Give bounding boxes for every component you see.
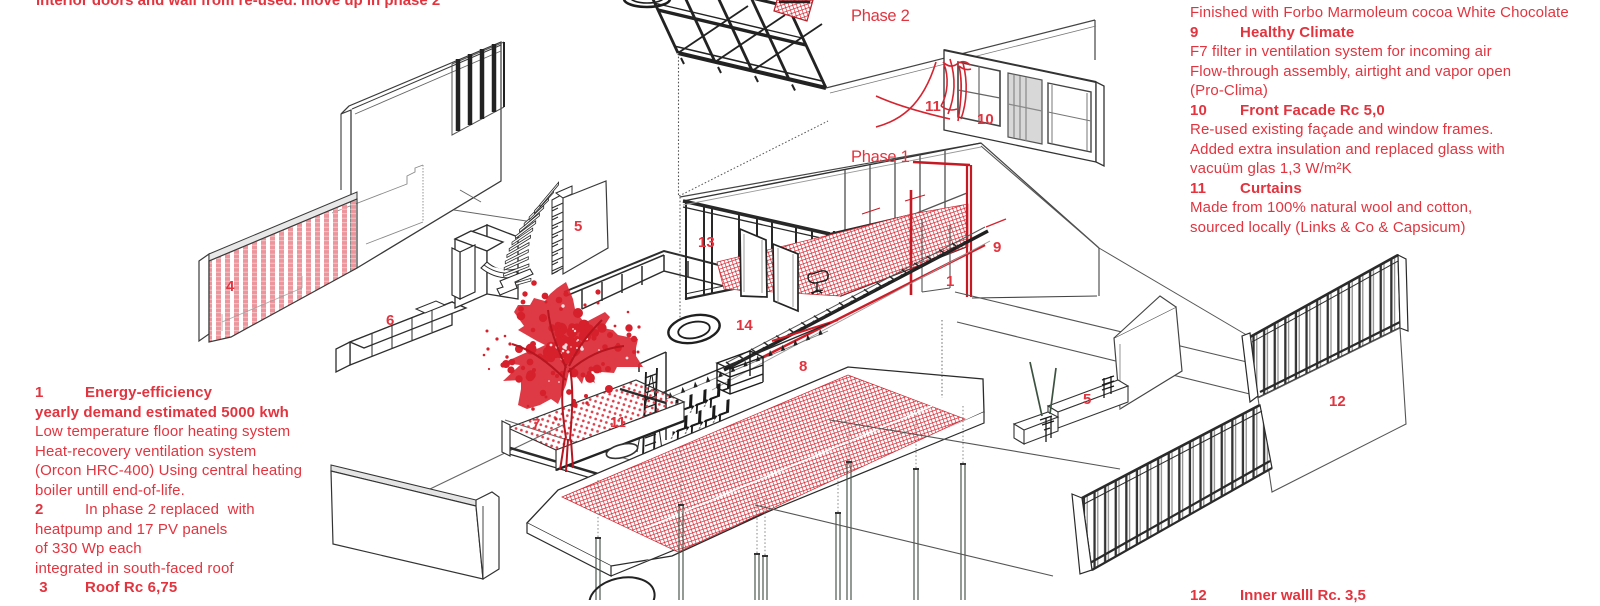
- svg-text:9: 9: [993, 239, 1001, 256]
- svg-text:4: 4: [226, 278, 235, 295]
- svg-text:10: 10: [977, 111, 994, 128]
- svg-text:6: 6: [386, 312, 394, 329]
- svg-text:13: 13: [698, 234, 715, 251]
- svg-text:14: 14: [736, 317, 753, 334]
- svg-text:7: 7: [532, 416, 540, 433]
- svg-text:1: 1: [946, 273, 954, 290]
- svg-text:5: 5: [574, 218, 582, 235]
- svg-text:8: 8: [799, 358, 807, 375]
- svg-text:11: 11: [925, 98, 941, 115]
- svg-text:12: 12: [1329, 393, 1346, 410]
- svg-text:5: 5: [1083, 391, 1091, 408]
- svg-text:11: 11: [610, 414, 626, 431]
